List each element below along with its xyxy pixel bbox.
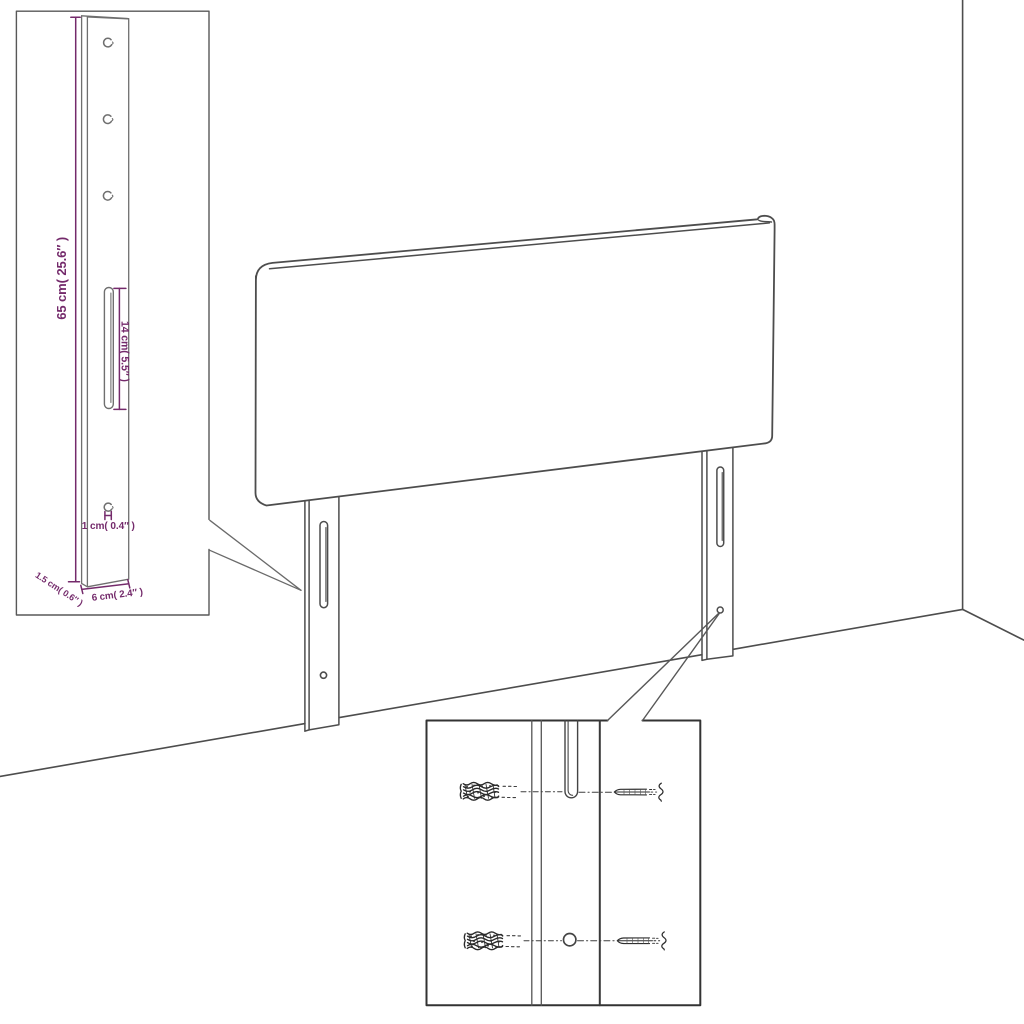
- svg-text:14 cm( 5.5″ ): 14 cm( 5.5″ ): [118, 321, 130, 382]
- svg-text:65 cm( 25.6″ ): 65 cm( 25.6″ ): [54, 237, 69, 320]
- svg-text:1.5 cm( 0.6″ ): 1.5 cm( 0.6″ ): [34, 570, 85, 608]
- svg-text:6 cm( 2.4″ ): 6 cm( 2.4″ ): [91, 587, 143, 604]
- svg-text:1 cm( 0.4″ ): 1 cm( 0.4″ ): [82, 521, 135, 532]
